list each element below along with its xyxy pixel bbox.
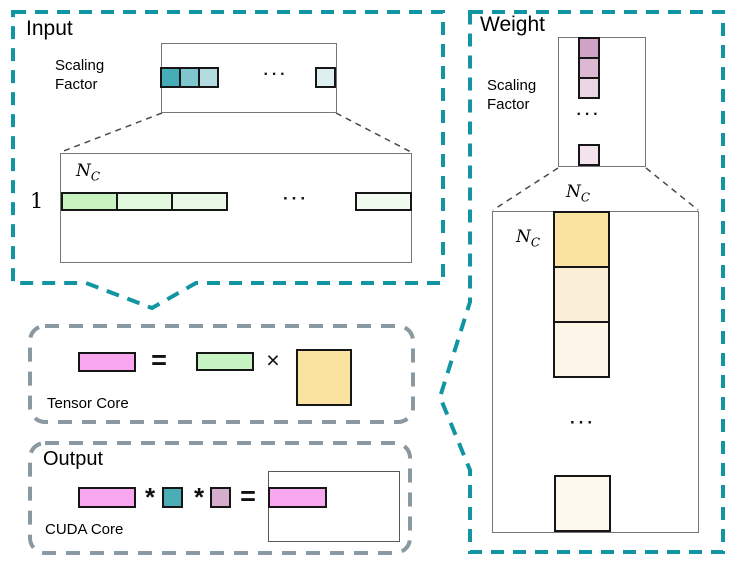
cell [578,57,600,79]
cuda-core-label: CUDA Core [45,520,123,539]
cell [171,192,228,211]
cell [578,77,600,99]
weight-zoom-line-right [646,168,698,210]
multiply-sign-2: * [189,484,209,510]
input-scaling-last-cell [315,67,336,88]
weight-nc-left-label: NC [516,227,540,249]
cell [578,37,600,59]
output-equals-sign: = [233,483,263,510]
cell [160,67,181,88]
output-partial-cell [78,487,136,508]
cell [553,266,610,323]
weight-col-dots: ··· [565,413,601,433]
input-scaling-dots: ··· [256,66,296,84]
weight-col-cells [553,211,610,378]
output-result-cell [268,487,327,508]
input-zoom-line-right [336,113,411,152]
output-weight-scale-cell [210,487,231,508]
cell [198,67,219,88]
weight-scaling-dots: ··· [571,106,607,124]
input-row-count-label: 1 [30,189,43,213]
tensor-result-cell [78,352,136,372]
weight-scaling-last-cell [578,144,600,166]
weight-scaling-factor-cells [578,37,600,99]
multiply-sign-1: * [140,484,160,510]
input-row-cells [61,192,228,211]
tensor-core-label: Tensor Core [47,394,129,413]
weight-zoom-line-left [493,168,558,210]
cell [179,67,200,88]
input-matrix-nc-label: NC [76,161,100,183]
weight-scaling-factor-box [558,37,646,167]
figure-canvas: Input Scaling Factor ··· NC 1 ··· Weight… [0,0,733,568]
tensor-weight-cell [296,349,352,406]
output-input-scale-cell [162,487,183,508]
cell [61,192,118,211]
input-scaling-factor-label: Scaling Factor [55,56,104,94]
nc-sub: C [531,235,540,249]
input-zoom-line-left [61,113,162,152]
weight-nc-top-label: NC [566,182,590,204]
input-row-last-cell [355,192,412,211]
weight-col-last-cell [554,475,611,532]
nc-base: N [566,182,581,202]
cell [553,321,610,378]
cell [553,211,610,268]
nc-base: N [76,161,91,181]
tensor-input-cell [196,352,254,371]
weight-title: Weight [480,14,545,36]
weight-scaling-factor-label: Scaling Factor [487,76,536,114]
input-title: Input [26,18,73,40]
cell [116,192,173,211]
tensor-times-sign: × [260,349,286,372]
nc-sub: C [91,169,100,183]
output-title: Output [43,448,103,470]
nc-base: N [516,227,531,247]
nc-sub: C [581,190,590,204]
input-scaling-factor-cells [160,67,219,88]
input-row-dots: ··· [276,189,316,209]
tensor-equals-sign: = [144,347,174,374]
